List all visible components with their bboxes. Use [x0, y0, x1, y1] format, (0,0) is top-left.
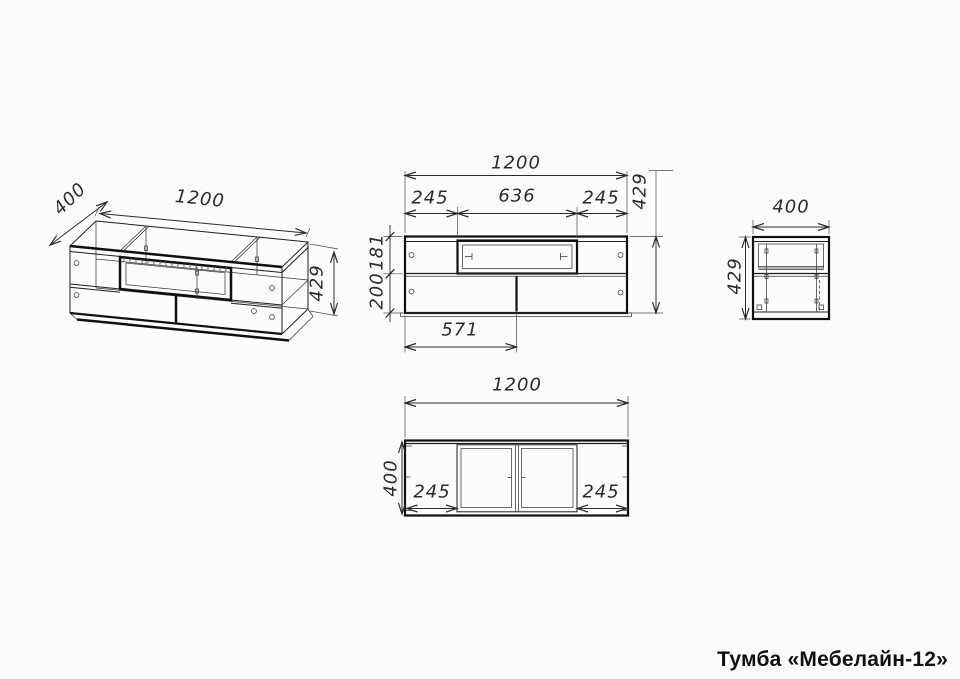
- side-depth-dim: 400: [772, 197, 809, 218]
- drawing-canvas: [0, 0, 960, 679]
- front-width-dim: 1200: [491, 153, 541, 174]
- isometric-view: [50, 202, 338, 341]
- side-view: [739, 220, 829, 319]
- front-door-width-dim: 571: [441, 320, 478, 341]
- front-upper-section-dim: 181: [367, 233, 388, 270]
- top-depth-dim: 400: [381, 459, 402, 496]
- top-width-dim: 1200: [492, 375, 542, 396]
- drawing-title: Тумба «Мебелайн-12»: [717, 648, 948, 672]
- front-height-dim: 429: [630, 172, 651, 209]
- iso-height-dim: 429: [307, 264, 328, 301]
- top-right-panel-dim: 245: [582, 482, 619, 503]
- front-niche-width-dim: 636: [498, 186, 535, 207]
- side-height-dim: 429: [725, 257, 746, 294]
- blueprint-page: 400 1200 429 1200 245 636 245 429 181 20…: [0, 0, 960, 679]
- front-niche-left-dim: 245: [411, 188, 448, 209]
- front-lower-section-dim: 200: [367, 272, 388, 309]
- top-left-panel-dim: 245: [413, 482, 450, 503]
- front-niche-right-dim: 245: [582, 188, 619, 209]
